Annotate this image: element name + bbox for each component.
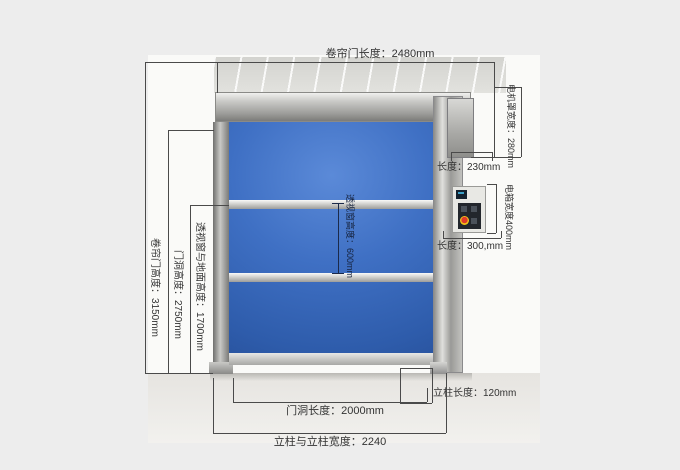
blue-door-curtain [229, 122, 434, 365]
dim-label-opening-length: 门洞长度：2000mm [270, 406, 400, 417]
dim-label-motor-cover-length: 长度：230mm [437, 163, 500, 173]
dimension-tick [487, 184, 496, 185]
extension-line [446, 373, 447, 433]
left-column [213, 122, 229, 373]
dimension-line-opening-length [233, 402, 427, 403]
control-box-button-panel [458, 203, 481, 229]
extension-line [217, 62, 218, 93]
ground-reference-line [145, 373, 213, 374]
dim-label-window-to-ground: 透视窗与地面高度：1700mm [194, 222, 204, 351]
dim-label-column-to-column: 立柱与立柱宽度：2240 [255, 437, 405, 448]
extension-line [213, 378, 214, 433]
extension-line [168, 130, 214, 131]
dimension-tick [487, 233, 496, 234]
dim-label-door-height: 卷帘门高度：3150mm [149, 238, 159, 337]
motor-cover [447, 98, 474, 158]
dim-label-control-box-height: 电箱宽度400mm [504, 184, 513, 250]
dim-label-motor-cover-height: 电机罩宽度：280mm [506, 84, 515, 168]
dimension-line-column-to-column [213, 433, 446, 434]
dim-label-door-width: 卷帘门长度：2480mm [300, 49, 460, 60]
extension-line [233, 378, 234, 402]
dimension-line-door-width [145, 62, 494, 63]
emergency-stop-button [460, 216, 469, 225]
dimension-tick [501, 231, 502, 238]
control-button [471, 218, 477, 224]
extension-line [400, 368, 401, 403]
extension-line [400, 368, 432, 369]
dim-label-opening-height: 门洞高度：2750mm [172, 250, 182, 339]
extension-line [494, 62, 495, 157]
control-box [452, 186, 486, 233]
curtain-bottom-beam [229, 353, 434, 365]
dimension-tick [332, 273, 344, 274]
extension-line [427, 388, 428, 402]
dim-label-window-height: 透视窗高度：600mm [345, 194, 354, 278]
dimension-line-window-to-ground [190, 205, 191, 373]
dimension-line-opening-height [168, 130, 169, 373]
dimension-line-control-box-height [496, 184, 497, 233]
dimension-tick [492, 152, 493, 161]
dimension-tick [451, 152, 452, 161]
control-button [461, 206, 467, 212]
extension-line [190, 205, 229, 206]
dimension-line-control-box-length [443, 238, 501, 239]
dimension-line-motor-cover-height [521, 87, 522, 157]
dimension-tick [332, 203, 344, 204]
vision-window-strip-top [229, 200, 434, 209]
control-box-display [456, 190, 467, 199]
vision-window-strip-bottom [229, 273, 434, 282]
dimension-line-door-height [145, 62, 146, 373]
extension-line [400, 403, 432, 404]
dim-label-control-box-length: 长度：300,mm [437, 242, 503, 252]
control-button [471, 206, 477, 212]
annotated-roller-door-diagram: 卷帘门长度：2480mm 卷帘门高度：3150mm 门洞高度：2750mm 透视… [0, 0, 680, 470]
dimension-line-window-height [338, 203, 339, 273]
dimension-line-motor-cover-length [451, 152, 492, 153]
dimension-tick [443, 231, 444, 238]
